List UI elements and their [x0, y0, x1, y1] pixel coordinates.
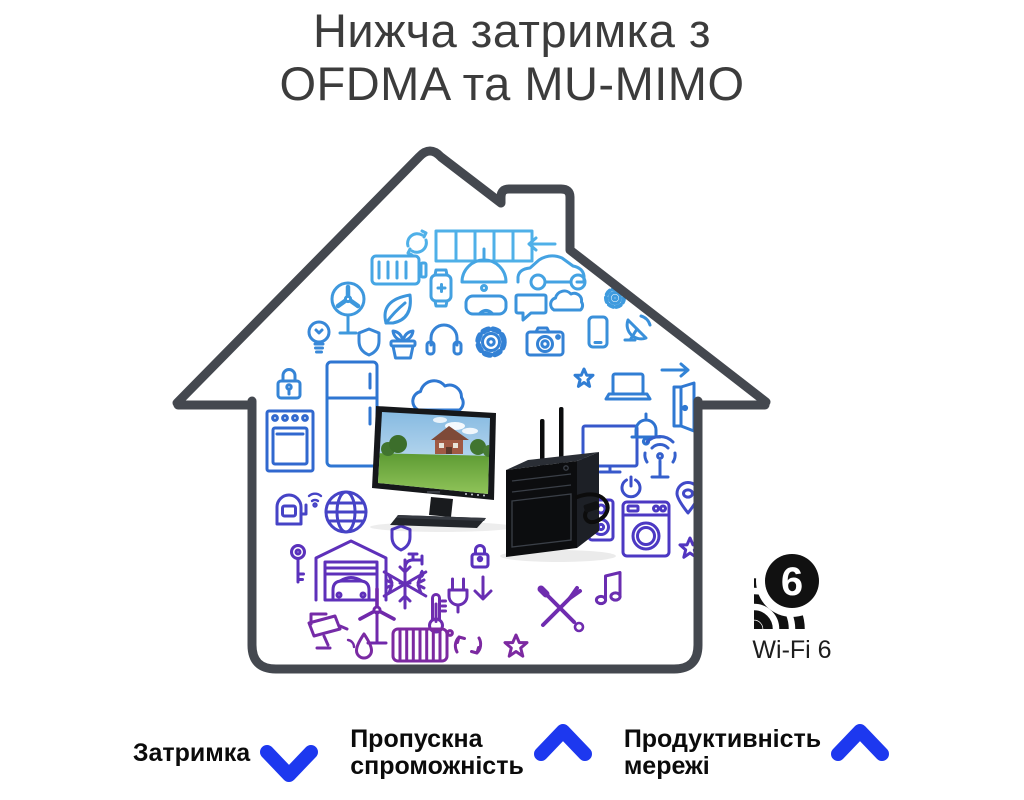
arrow-right-icon	[662, 364, 688, 376]
recycle-icon	[455, 637, 480, 653]
page-title-line2: OFDMA та MU-MIMO	[0, 57, 1024, 110]
down-arrow-icon	[258, 716, 320, 790]
star-small-icon	[575, 369, 593, 386]
star-outline-icon	[505, 635, 527, 656]
roof-and-chimney	[177, 151, 766, 403]
house-outline	[177, 151, 766, 669]
monitor-logo	[427, 491, 440, 493]
gear-icon	[478, 329, 504, 355]
cloud-small-icon	[551, 291, 583, 310]
laptop-icon	[606, 374, 650, 399]
thermometer-icon	[430, 595, 446, 633]
arrow-left-icon	[529, 238, 555, 250]
desktop-monitor	[370, 404, 514, 532]
page-title-line1: Нижча затримка з	[0, 4, 1024, 57]
padlock-small-icon	[472, 546, 488, 568]
page-title: Нижча затримка з OFDMA та MU-MIMO	[0, 4, 1024, 110]
droplet-icon	[357, 634, 372, 658]
plug-icon	[449, 579, 467, 612]
battery-icon	[372, 256, 426, 284]
fridge-icon	[327, 362, 377, 466]
wifi-6-number: 6	[781, 560, 803, 604]
smart-home-illustration	[140, 130, 840, 690]
infographic-page: Нижча затримка з OFDMA та MU-MIMO	[0, 0, 1024, 800]
wifi-6-logo: 6	[742, 549, 842, 645]
metric-throughput-label: Пропускна спроможність	[350, 726, 524, 780]
phone-icon	[589, 317, 607, 347]
plant-pot-icon	[391, 331, 415, 358]
cctv-icon	[309, 614, 354, 648]
up-arrow-icon	[829, 716, 891, 790]
metric-network-performance: Продуктивність мережі	[624, 716, 891, 790]
metric-latency-label: Затримка	[133, 740, 250, 767]
power-button-icon	[622, 477, 640, 497]
tools-icon	[541, 588, 583, 631]
open-door-icon	[674, 383, 694, 431]
metrics-row: Затримка Пропускна спроможність	[0, 716, 1024, 790]
smartwatch-icon	[431, 270, 451, 306]
oven-icon	[267, 411, 313, 471]
globe-icon	[326, 492, 366, 532]
shield-icon	[359, 329, 379, 355]
monitor-stand	[429, 497, 453, 517]
camera-icon	[527, 328, 563, 355]
leaf-icon	[385, 295, 410, 323]
headphones-icon	[427, 325, 461, 354]
up-arrow-icon	[532, 716, 594, 790]
washing-machine-icon	[623, 502, 669, 556]
snowflake-icon	[384, 560, 426, 608]
vr-glasses-icon	[466, 296, 506, 314]
pendant-lamp-icon	[462, 249, 506, 291]
fan-icon	[332, 283, 364, 333]
music-note-icon	[596, 573, 620, 604]
cloud-big-icon	[413, 381, 463, 410]
metric-network-performance-label: Продуктивність мережі	[624, 726, 821, 780]
metric-throughput: Пропускна спроможність	[350, 716, 594, 790]
arrow-down-small-icon	[475, 577, 491, 599]
chat-bubble-icon	[516, 295, 546, 320]
key-icon	[292, 546, 305, 583]
lightbulb-icon	[309, 322, 329, 352]
radiator-icon	[393, 629, 452, 661]
metric-latency: Затримка	[133, 716, 320, 790]
mailbox-icon	[277, 494, 321, 524]
satellite-dish-icon	[625, 316, 650, 340]
sync-icon	[408, 231, 427, 255]
wifi-6-label: Wi-Fi 6	[736, 636, 848, 665]
lock-icon	[278, 370, 300, 399]
